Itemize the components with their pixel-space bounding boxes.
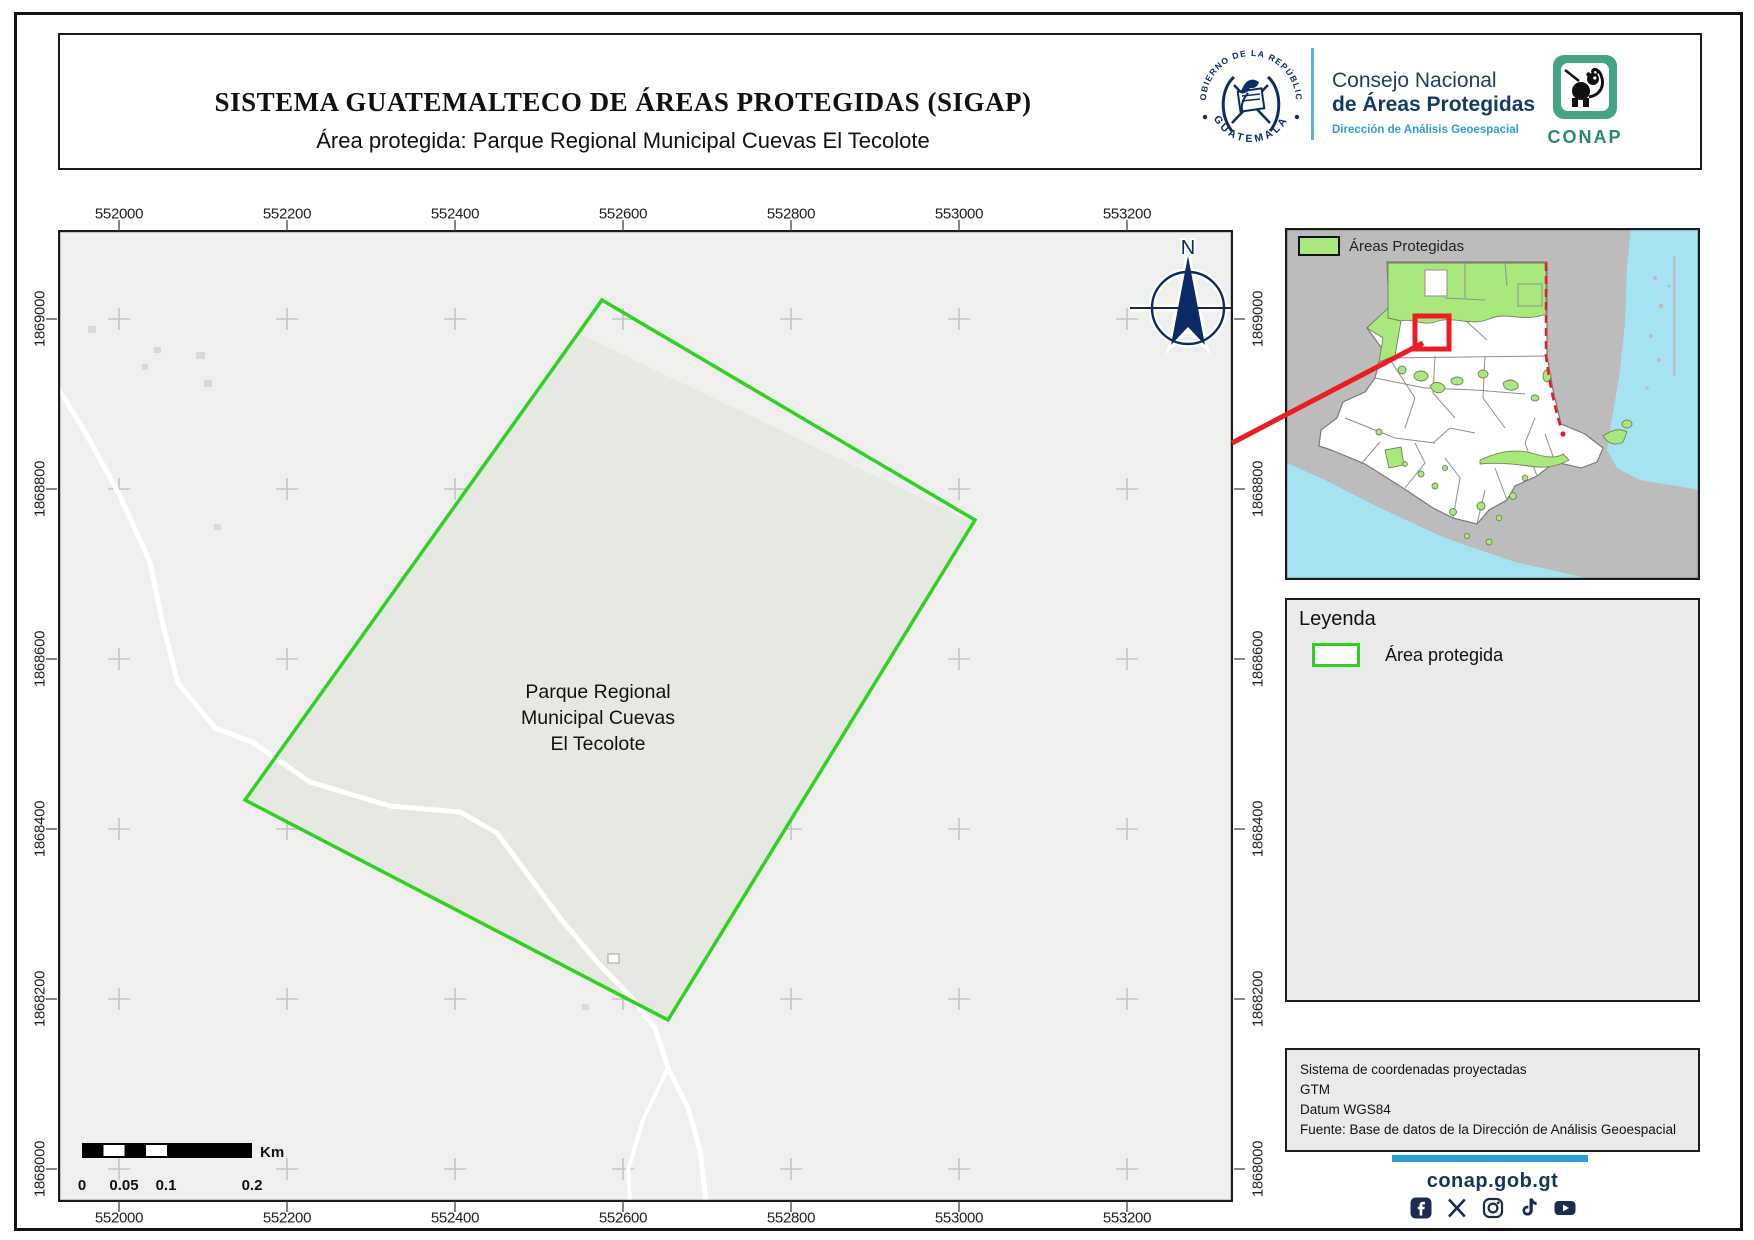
area-label-line2: Municipal Cuevas [521, 707, 675, 729]
x-axis-label-top-0: 552000 [95, 206, 143, 223]
conap-wordmark: CONAP [1548, 127, 1622, 147]
conap-logo: CONAP [1548, 50, 1622, 150]
y-axis-label-right-2: 1868600 [1250, 631, 1267, 687]
building-outline [608, 954, 619, 963]
scalebar-tick-3: 0.2 [242, 1177, 263, 1194]
footer-accent-bar [1392, 1155, 1588, 1162]
legend-box: Leyenda Área protegida [1285, 598, 1700, 1002]
website-url: conap.gob.gt [1285, 1170, 1700, 1193]
org-department: Dirección de Análisis Geoespacial [1332, 124, 1519, 136]
info-box: Sistema de coordenadas proyectadas GTM D… [1285, 1048, 1700, 1152]
x-axis-label-bottom-4: 552800 [767, 1210, 815, 1227]
info-line-2: GTM [1300, 1082, 1330, 1097]
seal-bottom-text: GUATEMALA [1211, 113, 1291, 145]
y-axis-label-right-1: 1868800 [1250, 461, 1267, 517]
seal-dot-right [1295, 115, 1299, 119]
x-axis-label-bottom-3: 552600 [599, 1210, 647, 1227]
y-axis-label-left-2: 1868600 [32, 631, 49, 687]
north-label: N [1181, 237, 1195, 259]
x-axis-label-bottom-1: 552200 [263, 1210, 311, 1227]
x-axis-label-bottom-6: 553200 [1103, 1210, 1151, 1227]
map-document: SISTEMA GUATEMALTECO DE ÁREAS PROTEGIDAS… [0, 0, 1754, 1240]
inset-legend-swatch [1299, 237, 1339, 255]
area-label-line1: Parque Regional [525, 681, 670, 703]
legend-item-label: Área protegida [1385, 645, 1503, 666]
org-name-line1: Consejo Nacional [1332, 69, 1497, 93]
social-icons-row [1285, 1196, 1700, 1220]
y-axis-label-left-0: 1869000 [32, 291, 49, 347]
logo-divider [1311, 48, 1314, 140]
x-axis-label-top-6: 553200 [1103, 206, 1151, 223]
scalebar-tick-1: 0.05 [109, 1177, 138, 1194]
page-subtitle: Área protegida: Parque Regional Municipa… [118, 128, 1128, 154]
x-axis-label-top-3: 552600 [599, 206, 647, 223]
y-axis-label-left-1: 1868800 [32, 461, 49, 517]
scalebar-unit: Km [260, 1144, 284, 1161]
scalebar-tick-0: 0 [78, 1177, 86, 1194]
x-axis-label-bottom-0: 552000 [95, 1210, 143, 1227]
facebook-icon [1409, 1196, 1433, 1220]
youtube-icon [1553, 1196, 1577, 1220]
legend-swatch [1312, 643, 1360, 667]
seal-dot-left [1203, 115, 1207, 119]
government-seal: GOBIERNO DE LA REPÚBLICA GUATEMALA [1196, 45, 1306, 157]
page-title: SISTEMA GUATEMALTECO DE ÁREAS PROTEGIDAS… [118, 87, 1128, 118]
svg-text:GUATEMALA: GUATEMALA [1211, 113, 1291, 145]
area-label-line3: El Tecolote [550, 733, 645, 755]
scalebar-tick-2: 0.1 [156, 1177, 177, 1194]
x-axis-label-top-1: 552200 [263, 206, 311, 223]
x-axis-label-bottom-2: 552400 [431, 1210, 479, 1227]
quetzal-emblem-icon [1223, 77, 1279, 131]
instagram-icon [1481, 1196, 1505, 1220]
title-block: SISTEMA GUATEMALTECO DE ÁREAS PROTEGIDAS… [118, 87, 1128, 154]
inset-legend: Áreas Protegidas [1299, 237, 1464, 255]
x-twitter-icon [1445, 1196, 1469, 1220]
info-line-4: Fuente: Base de datos de la Dirección de… [1300, 1122, 1676, 1137]
y-axis-label-right-4: 1868200 [1250, 971, 1267, 1027]
y-axis-label-left-5: 1868000 [32, 1141, 49, 1197]
y-axis-label-right-3: 1868400 [1250, 801, 1267, 857]
y-axis-label-left-4: 1868200 [32, 971, 49, 1027]
x-axis-label-bottom-5: 553000 [935, 1210, 983, 1227]
x-axis-label-top-2: 552400 [431, 206, 479, 223]
inset-legend-label: Áreas Protegidas [1349, 238, 1464, 255]
tiktok-icon [1517, 1196, 1541, 1220]
y-axis-label-right-0: 1869000 [1250, 291, 1267, 347]
info-line-3: Datum WGS84 [1300, 1102, 1391, 1117]
x-axis-label-top-4: 552800 [767, 206, 815, 223]
y-axis-label-right-5: 1868000 [1250, 1141, 1267, 1197]
inset-locator-map: Áreas Protegidas [1285, 228, 1700, 580]
legend-title: Leyenda [1299, 608, 1376, 631]
org-name-line2: de Áreas Protegidas [1332, 93, 1535, 117]
y-axis-label-left-3: 1868400 [32, 801, 49, 857]
x-axis-label-top-5: 553000 [935, 206, 983, 223]
main-map: Parque Regional Municipal Cuevas El Teco… [58, 230, 1233, 1202]
info-line-1: Sistema de coordenadas proyectadas [1300, 1062, 1527, 1077]
